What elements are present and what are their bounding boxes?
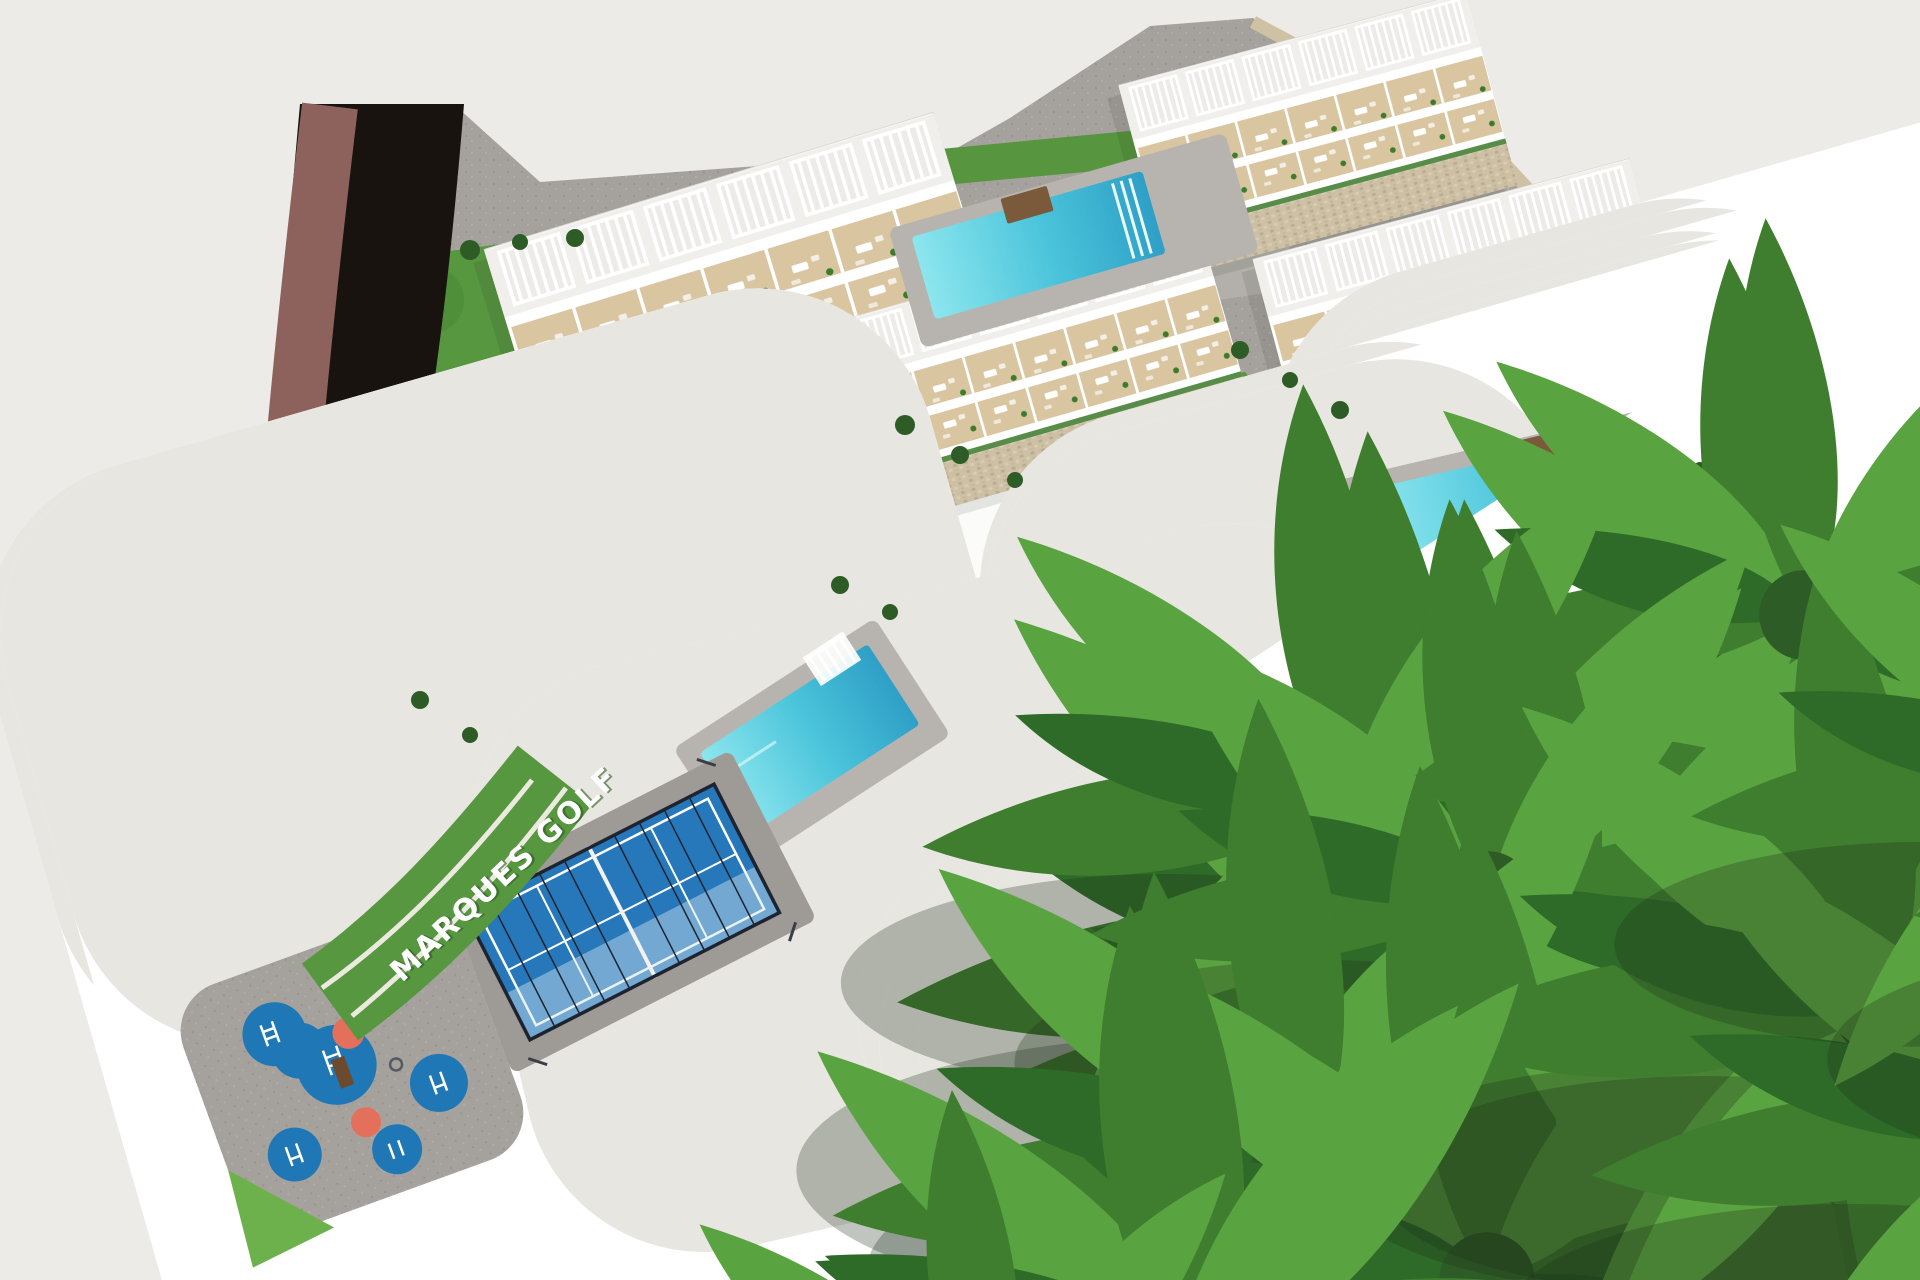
site-plan-svg: MARQUES GOLF MARQUES GOLF (0, 0, 1920, 1280)
aerial-site-render: MARQUES GOLF MARQUES GOLF (0, 0, 1920, 1280)
